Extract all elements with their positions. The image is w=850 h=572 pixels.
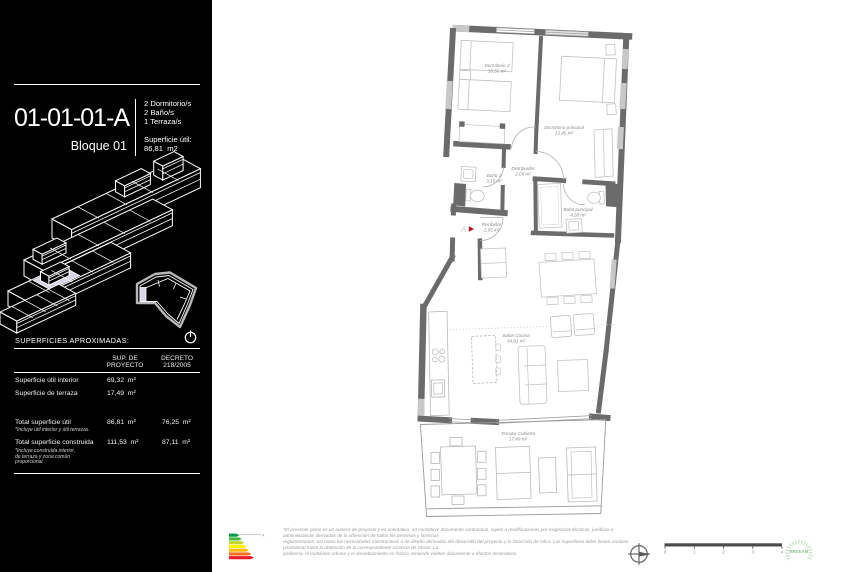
svg-text:1: 1 bbox=[693, 550, 696, 555]
svg-text:Salón Cocina: Salón Cocina bbox=[502, 333, 530, 338]
svg-text:10,56 m²: 10,56 m² bbox=[488, 69, 507, 74]
svg-text:A: A bbox=[460, 225, 466, 234]
svg-text:Dormitorio principal: Dormitorio principal bbox=[544, 125, 585, 130]
svg-text:4,38 m²: 4,38 m² bbox=[570, 213, 586, 218]
svg-text:34,81 m²: 34,81 m² bbox=[507, 339, 526, 344]
svg-text:Baño principal: Baño principal bbox=[563, 207, 593, 212]
svg-text:17,49 m²: 17,49 m² bbox=[509, 437, 528, 442]
svg-text:4: 4 bbox=[781, 550, 784, 555]
svg-text:0: 0 bbox=[664, 550, 667, 555]
svg-text:A: A bbox=[262, 534, 265, 538]
svg-text:2: 2 bbox=[722, 550, 725, 555]
svg-text:Baño 2: Baño 2 bbox=[487, 173, 502, 178]
svg-text:13,46 m²: 13,46 m² bbox=[555, 131, 574, 136]
svg-text:Terraza Cubierta: Terraza Cubierta bbox=[501, 431, 535, 436]
svg-text:3: 3 bbox=[752, 550, 755, 555]
svg-text:2,95 m²: 2,95 m² bbox=[483, 228, 500, 233]
svg-text:Dormitorio 2: Dormitorio 2 bbox=[484, 63, 509, 68]
svg-text:2,05 m²: 2,05 m² bbox=[514, 172, 531, 177]
svg-text:Distribuidor: Distribuidor bbox=[511, 166, 535, 171]
svg-text:Recibidor: Recibidor bbox=[482, 222, 502, 227]
svg-text:BREEAM: BREEAM bbox=[790, 549, 809, 554]
svg-text:3,19 m²: 3,19 m² bbox=[486, 179, 502, 184]
